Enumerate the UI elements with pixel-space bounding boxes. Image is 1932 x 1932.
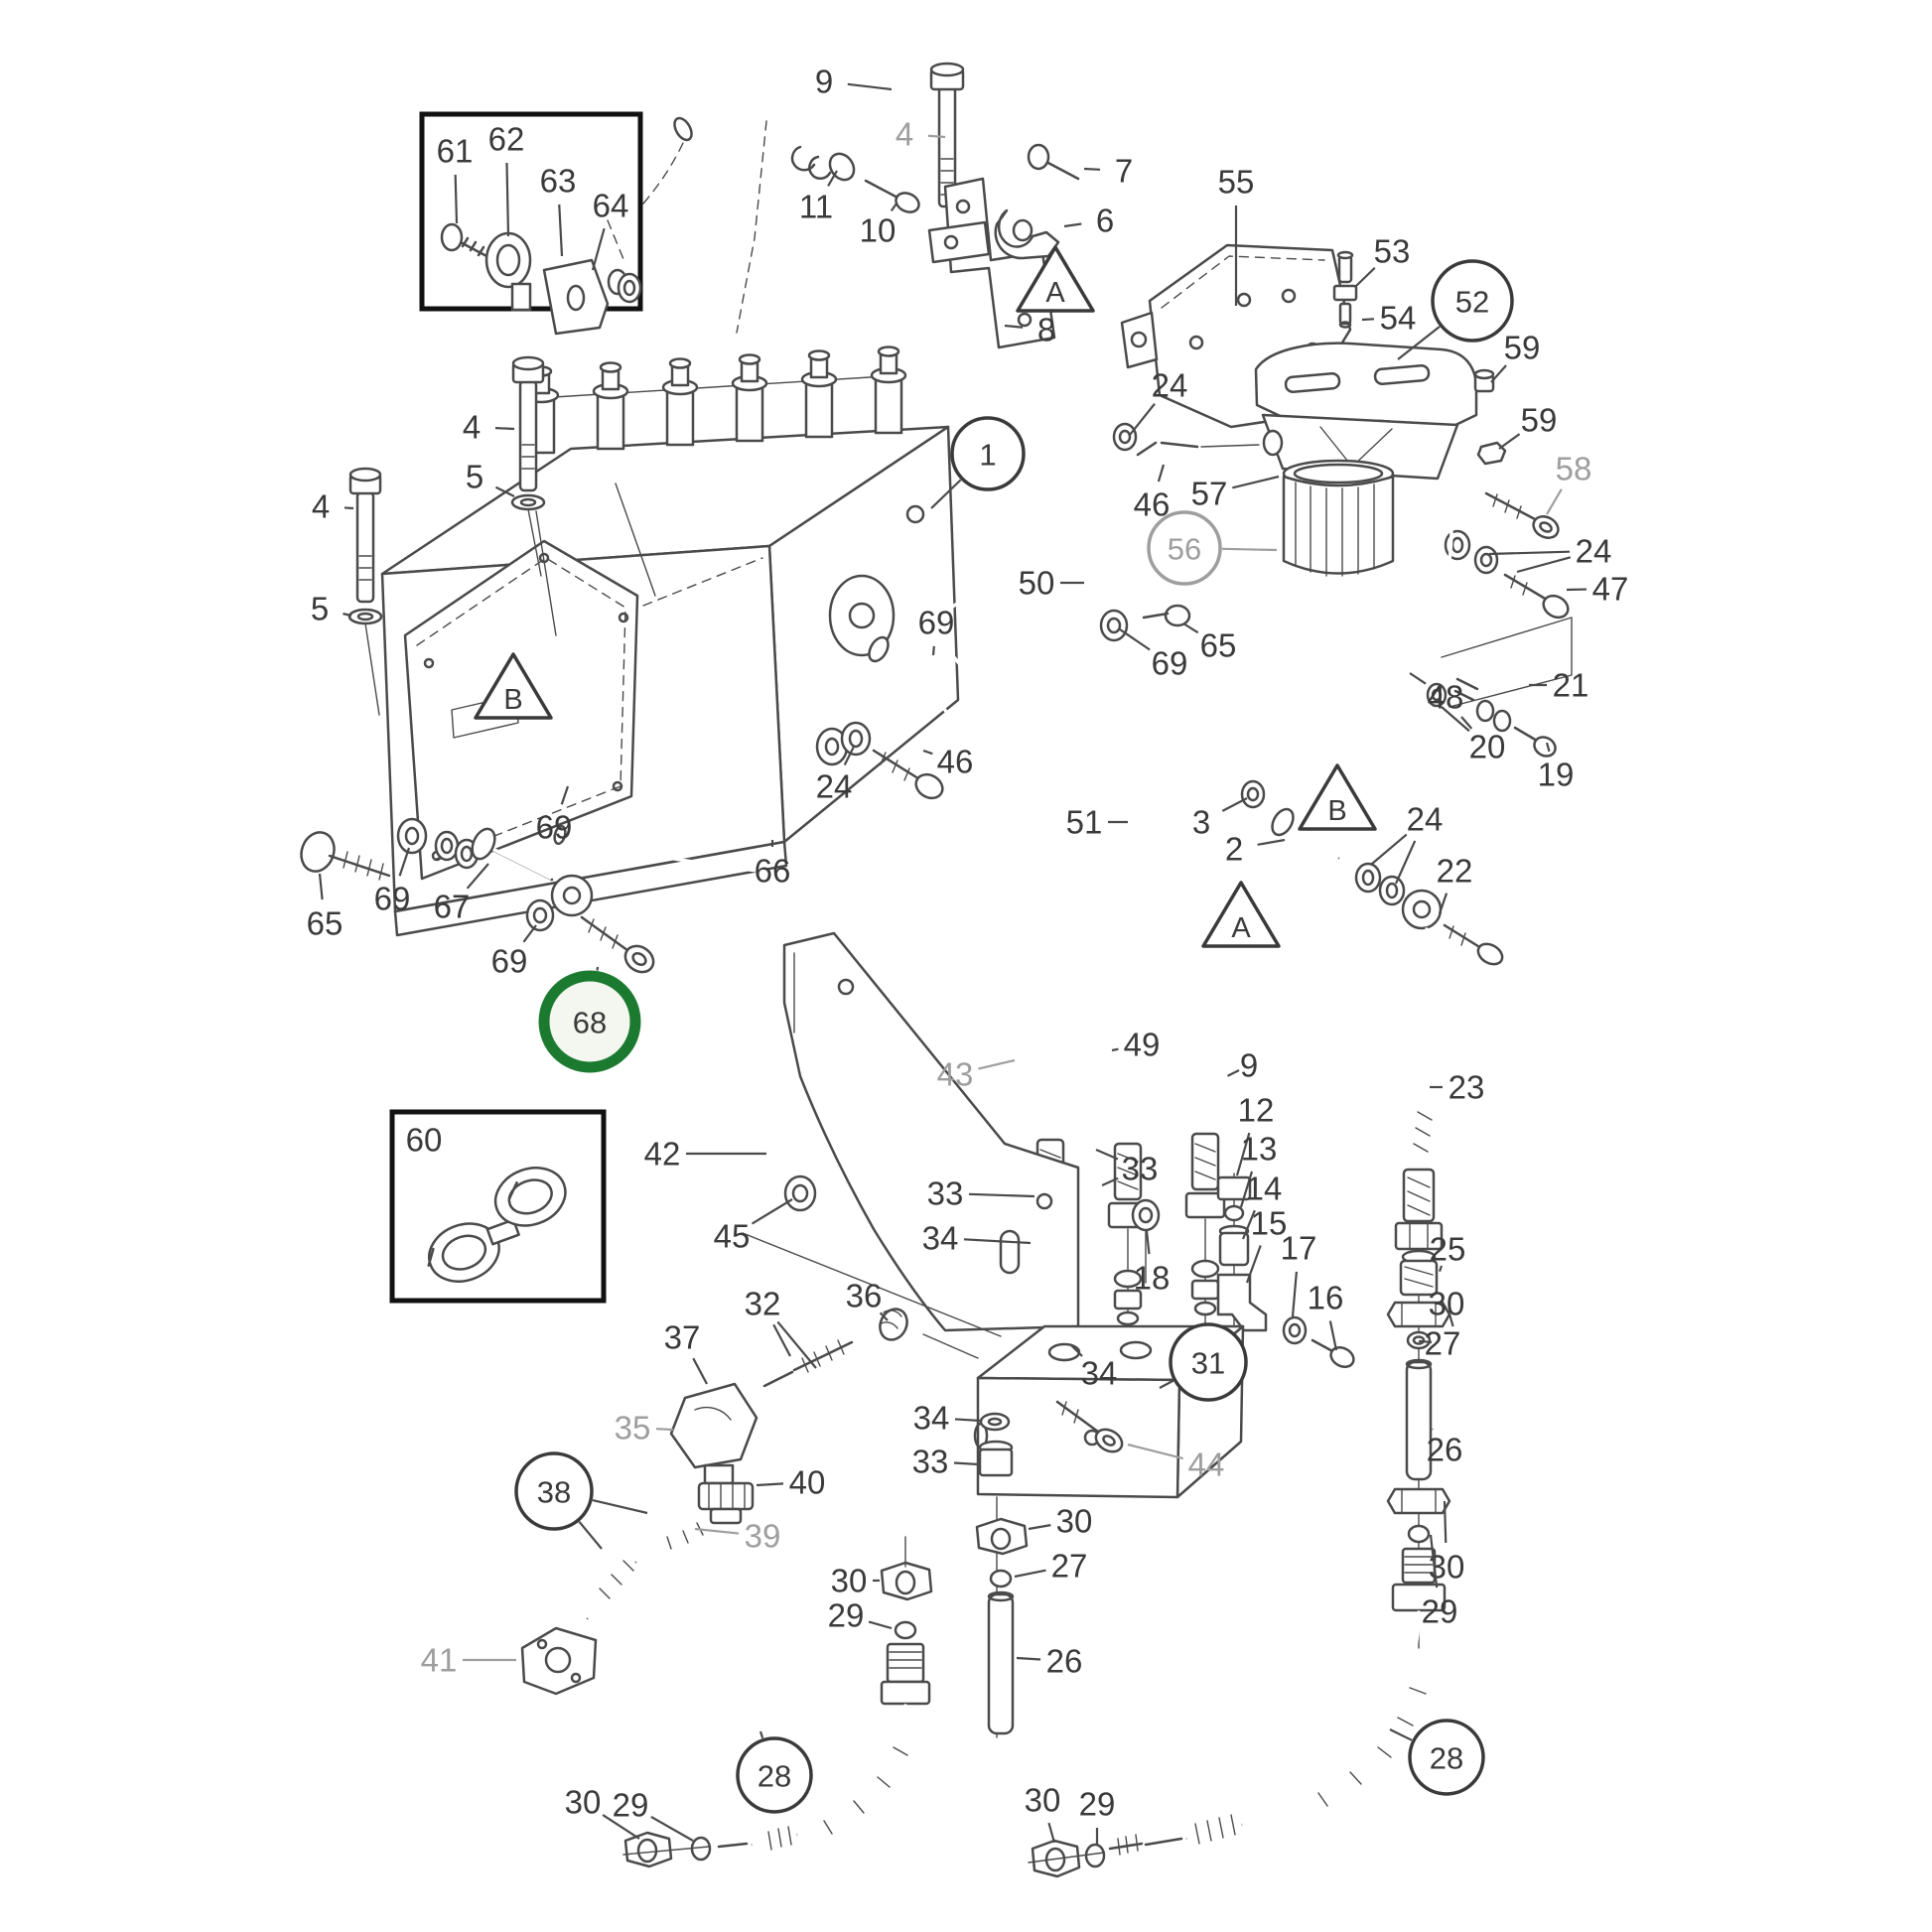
part-callout-34: 34: [922, 1220, 959, 1257]
part-circle-label-56: 56: [1168, 532, 1201, 567]
part-callout-23: 23: [1449, 1069, 1485, 1106]
part-callout-10: 10: [860, 212, 897, 249]
leader-line: [506, 163, 508, 236]
part-callout-26: 26: [1046, 1643, 1083, 1680]
leader-line: [345, 507, 353, 508]
leader-line: [1396, 841, 1415, 884]
leader-line: [1130, 404, 1155, 435]
part-callout-11: 11: [799, 189, 833, 225]
part-callout-12: 12: [1238, 1092, 1275, 1129]
bracket-42-drawing: [743, 933, 1078, 1336]
leader-line: [523, 925, 536, 942]
part-callout-34: 34: [1081, 1355, 1118, 1392]
exploded-parts-diagram: 9471110685553545959582446574545616263646…: [0, 0, 1932, 1932]
part-callout-65: 65: [1200, 627, 1237, 664]
leader-line: [1356, 268, 1375, 286]
part-callout-17: 17: [1281, 1230, 1317, 1267]
leader-line: [753, 1199, 792, 1224]
leader-line: [1120, 629, 1150, 650]
warning-triangle-letter-B: B: [503, 684, 522, 716]
part-callout-30: 30: [1429, 1286, 1465, 1322]
part-callout-6: 6: [1096, 203, 1114, 239]
part-callout-29: 29: [613, 1787, 649, 1824]
leader-line: [757, 1483, 783, 1485]
leader-line: [456, 175, 457, 223]
part-callout-14: 14: [1246, 1171, 1283, 1207]
part-callout-4: 4: [463, 409, 481, 446]
part-callout-27: 27: [1425, 1325, 1461, 1362]
leader-line: [1232, 477, 1279, 487]
warning-triangle-letter-A: A: [1045, 277, 1065, 309]
part-callout-22: 22: [1437, 853, 1473, 890]
part-callout-59: 59: [1521, 402, 1558, 439]
part-callout-67: 67: [434, 889, 471, 925]
hose-23-drawing: [1404, 929, 1434, 1221]
part-callout-4: 4: [896, 116, 913, 153]
part-callout-29: 29: [1079, 1786, 1116, 1823]
leader-line: [1017, 1658, 1040, 1660]
leader-line: [1499, 434, 1520, 449]
part-callout-9: 9: [815, 64, 833, 100]
part-callout-57: 57: [1191, 476, 1228, 512]
part-callout-30: 30: [1056, 1503, 1093, 1540]
leader-line: [693, 1358, 707, 1384]
part-callout-24: 24: [1576, 533, 1612, 570]
leader-line: [495, 428, 514, 429]
hose-28-right-drawing: [1029, 1612, 1426, 1876]
leader-line: [1410, 673, 1426, 684]
part-callout-7: 7: [1115, 153, 1133, 190]
leader-line: [656, 1429, 673, 1430]
part-callout-3: 3: [1192, 804, 1210, 841]
part-callout-33: 33: [927, 1175, 964, 1212]
leader-line: [1029, 1525, 1050, 1529]
part-callout-35: 35: [615, 1410, 651, 1447]
leader-line: [923, 751, 932, 754]
part-callout-43: 43: [937, 1056, 974, 1093]
part-callout-51: 51: [1066, 804, 1103, 841]
part-callout-69: 69: [374, 881, 411, 917]
leader-line: [1147, 1231, 1149, 1254]
leader-line: [1064, 223, 1081, 226]
leader-line: [1489, 552, 1570, 554]
leader-line: [1372, 835, 1407, 864]
part-callout-42: 42: [644, 1136, 681, 1173]
part-callout-63: 63: [540, 163, 577, 200]
part-callout-29: 29: [1422, 1593, 1458, 1630]
leader-line: [320, 874, 323, 899]
part-callout-18: 18: [1134, 1260, 1171, 1297]
part-callout-46: 46: [937, 744, 974, 780]
leader-line: [1547, 489, 1562, 514]
part-callout-45: 45: [714, 1218, 751, 1255]
leader-line: [1222, 798, 1247, 811]
part-callout-32: 32: [745, 1286, 781, 1322]
clamp-6-bolt-7-drawing: [996, 145, 1078, 258]
leader-line: [954, 1462, 979, 1464]
part-callout-69: 69: [491, 943, 528, 980]
leader-line: [1183, 623, 1198, 632]
parts-diagram-page: 9471110685553545959582446574545616263646…: [0, 0, 1932, 1932]
part-callout-69: 69: [1152, 645, 1188, 682]
part-callout-30: 30: [565, 1784, 602, 1821]
leader-line: [1293, 1272, 1297, 1316]
part-callout-4: 4: [312, 488, 330, 525]
part-callout-24: 24: [1407, 801, 1444, 838]
part-callout-27: 27: [1051, 1548, 1088, 1585]
part-callout-64: 64: [593, 188, 629, 224]
part-circle-label-28: 28: [1430, 1741, 1463, 1776]
part-callout-61: 61: [437, 133, 474, 170]
leader-line: [773, 1324, 790, 1356]
part-callout-54: 54: [1380, 300, 1417, 337]
part-callout-49: 49: [1124, 1027, 1161, 1063]
leader-line: [1015, 1571, 1045, 1577]
part-circle-label-68: 68: [573, 1006, 607, 1040]
part-callout-44: 44: [1188, 1447, 1225, 1483]
part-callout-30: 30: [831, 1563, 868, 1599]
leader-line: [580, 1522, 602, 1549]
bracket-8-drawing: [929, 179, 1054, 347]
part-callout-21: 21: [1553, 667, 1589, 704]
part-callout-62: 62: [488, 121, 525, 158]
part-callout-24: 24: [1152, 367, 1188, 404]
leader-line: [848, 84, 892, 89]
leader-line: [1258, 840, 1285, 845]
part-callout-5: 5: [311, 591, 329, 627]
warning-triangle-letter-A: A: [1231, 912, 1251, 944]
leader-line: [978, 1060, 1015, 1069]
part-callout-66: 66: [755, 853, 791, 890]
part-callout-34: 34: [913, 1400, 950, 1437]
leader-line: [593, 1500, 647, 1513]
part-callout-39: 39: [745, 1518, 781, 1555]
leader-line: [1362, 319, 1374, 320]
part-callout-33: 33: [1122, 1151, 1159, 1187]
part-callout-59: 59: [1504, 330, 1541, 366]
part-callout-2: 2: [1225, 831, 1243, 868]
part-callout-25: 25: [1430, 1231, 1466, 1268]
part-callout-24: 24: [816, 768, 853, 805]
hose-28-left-drawing: [623, 1537, 931, 1866]
part-callout-40: 40: [789, 1464, 826, 1501]
leader-line: [1222, 549, 1277, 550]
part-callout-29: 29: [828, 1597, 865, 1634]
part-callout-69: 69: [536, 809, 573, 846]
part-callout-33: 33: [912, 1444, 949, 1480]
leader-line: [1084, 169, 1100, 170]
part-circle-label-31: 31: [1191, 1346, 1225, 1381]
part-callout-41: 41: [421, 1642, 458, 1679]
part-callout-5: 5: [466, 459, 483, 495]
part-callout-16: 16: [1308, 1280, 1344, 1316]
leader-line: [760, 1731, 762, 1738]
leader-line: [1445, 1501, 1446, 1543]
part-callout-50: 50: [1019, 565, 1055, 602]
part-callout-13: 13: [1241, 1131, 1278, 1168]
leader-line: [928, 136, 945, 137]
leader-line: [869, 1622, 892, 1628]
part-callout-53: 53: [1374, 233, 1411, 270]
leader-line: [1159, 465, 1164, 482]
leader-line: [892, 204, 897, 210]
part-callout-47: 47: [1592, 571, 1629, 608]
part-circle-label-28: 28: [758, 1759, 791, 1794]
leader-line: [597, 967, 598, 971]
part-callout-58: 58: [1556, 451, 1592, 487]
part-callout-69: 69: [918, 605, 955, 641]
leader-line: [1112, 1049, 1118, 1050]
part-circle-label-38: 38: [537, 1475, 571, 1510]
part-callout-37: 37: [664, 1319, 701, 1356]
leader-line: [1517, 557, 1571, 572]
part-circle-label-52: 52: [1455, 285, 1489, 320]
leader-line: [933, 646, 934, 655]
fuel-filter-assembly-drawing: [1256, 344, 1572, 621]
part-callout-20: 20: [1469, 729, 1506, 765]
part-callout-55: 55: [1218, 164, 1255, 201]
leader-line: [1390, 1729, 1412, 1740]
part-callout-36: 36: [846, 1278, 883, 1314]
part-callout-26: 26: [1427, 1432, 1463, 1468]
leader-line: [955, 1419, 981, 1421]
part-callout-60: 60: [406, 1122, 443, 1159]
warning-triangle-letter-B: B: [1327, 795, 1346, 827]
part-callout-65: 65: [307, 905, 344, 942]
leader-line: [1330, 1320, 1336, 1350]
leader-line: [1048, 1823, 1054, 1843]
part-callout-8: 8: [1037, 312, 1055, 348]
part-callout-19: 19: [1538, 757, 1575, 793]
part-callout-30: 30: [1025, 1782, 1061, 1819]
part-circle-label-1: 1: [979, 438, 996, 473]
part-callout-9: 9: [1240, 1047, 1258, 1084]
